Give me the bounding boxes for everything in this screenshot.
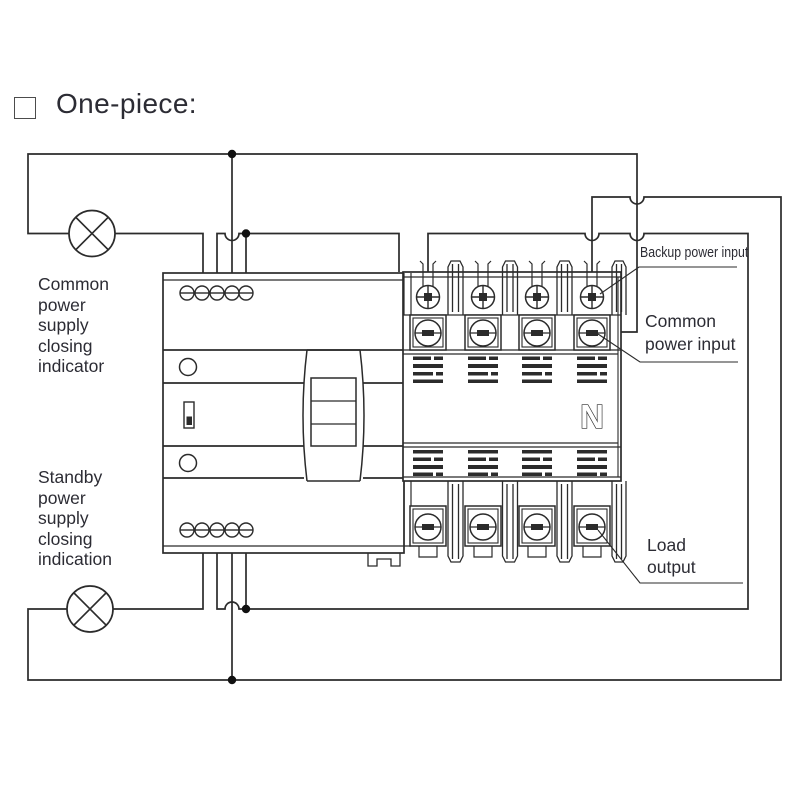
standby-lamp-icon [67,586,113,632]
common-power-input-label: Common power input [645,310,735,356]
common-indicator-label: Common power supply closing indicator [38,274,109,377]
din-clip [368,553,400,566]
pole-barrier-icon [503,481,518,562]
standby-indicator-label: Standby power supply closing indication [38,467,112,570]
junction-dot [242,229,250,237]
neutral-pole-marking: N [580,398,604,435]
common-lamp-icon [69,211,115,257]
load-output-label: Load output [647,534,696,578]
controller-block [163,273,404,566]
junction-dot [228,676,236,684]
diagram-page: One-piece: [0,0,800,800]
pole-barrier-icon [448,481,463,562]
junction-dot [228,150,236,158]
ats-wiring-diagram: N [0,0,800,800]
junction-dot [242,605,250,613]
pole-barrier-icon [557,481,572,562]
backup-power-input-label: Backup power input [640,245,748,261]
